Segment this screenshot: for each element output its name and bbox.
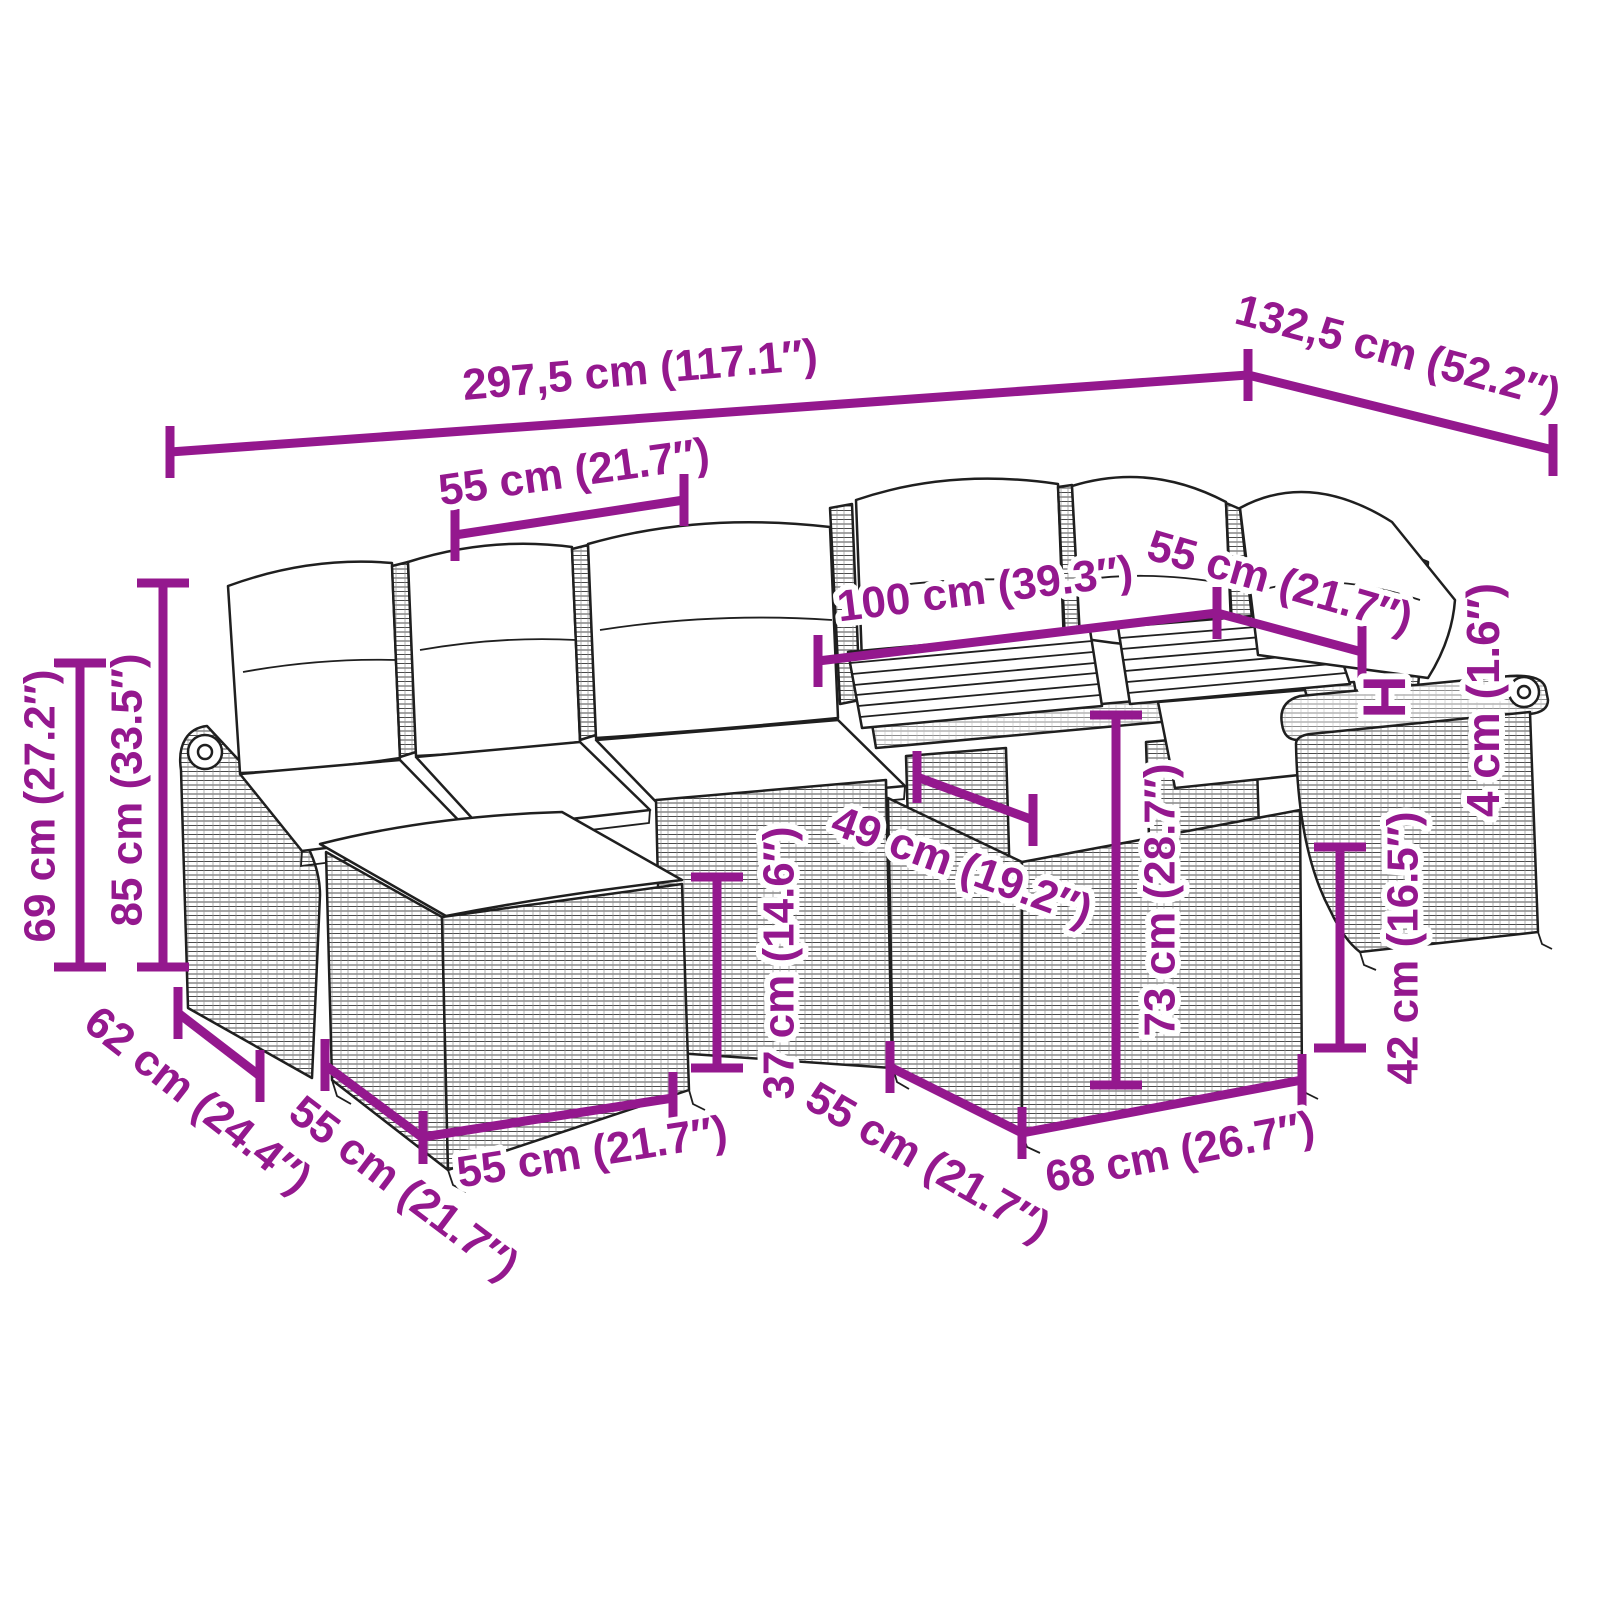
back-pillow — [408, 544, 580, 756]
furniture-dimension-diagram: 297,5 cm (117.1″)132,5 cm (52.2″)55 cm (… — [0, 0, 1600, 1600]
dimension-label: 69 cm (27.2″) — [16, 669, 65, 942]
dimension-label: 37 cm (14.6″) — [755, 826, 804, 1099]
dimension-label: 42 cm (16.5″) — [1379, 811, 1428, 1084]
dimension-label: 4 cm (1.6″) — [1457, 583, 1509, 817]
back-pillow — [228, 562, 400, 773]
label-height-reference: H — [1351, 675, 1418, 718]
left-arm-scroll-inner — [198, 745, 212, 759]
label-armrest-thickness: 4 cm (1.6″) — [1457, 583, 1509, 817]
dimension-label: H — [1351, 675, 1418, 718]
dimension-label: 85 cm (33.5″) — [103, 653, 152, 926]
diagram-canvas: 297,5 cm (117.1″)132,5 cm (52.2″)55 cm (… — [0, 0, 1600, 1600]
back-pillow — [588, 522, 838, 738]
right-arm-scroll-inner — [1518, 686, 1530, 698]
dimension-label: 73 cm (28.7″) — [1136, 763, 1185, 1036]
